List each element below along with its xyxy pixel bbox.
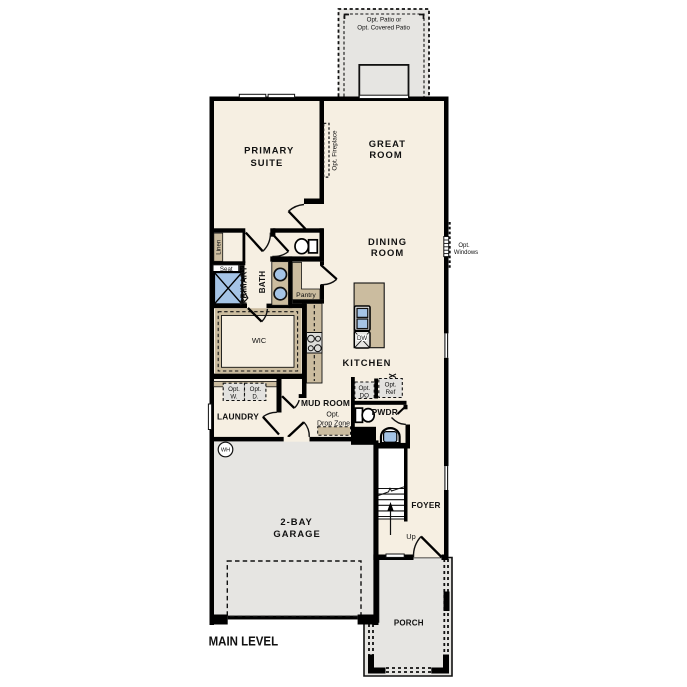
svg-text:Opt.: Opt. <box>458 243 470 249</box>
svg-text:Opt.: Opt. <box>358 385 370 392</box>
svg-text:DO: DO <box>360 392 369 399</box>
svg-text:Opt.: Opt. <box>228 386 240 393</box>
svg-text:GARAGE: GARAGE <box>273 528 320 539</box>
svg-text:KITCHEN: KITCHEN <box>342 357 391 368</box>
svg-text:Up: Up <box>406 532 415 541</box>
svg-text:Linen: Linen <box>215 239 222 255</box>
svg-text:DINING: DINING <box>368 236 407 247</box>
svg-text:MAIN LEVEL: MAIN LEVEL <box>209 633 279 648</box>
svg-text:D.: D. <box>252 394 258 401</box>
svg-text:Opt. Fireplace: Opt. Fireplace <box>332 130 339 171</box>
svg-text:Windows: Windows <box>454 250 478 256</box>
svg-text:2-BAY: 2-BAY <box>280 516 313 527</box>
svg-text:PRIMARY: PRIMARY <box>244 145 294 156</box>
svg-text:ROOM: ROOM <box>369 149 402 160</box>
svg-text:ROOM: ROOM <box>371 247 404 258</box>
svg-text:Ref: Ref <box>386 389 396 396</box>
svg-text:Drop Zone: Drop Zone <box>317 421 350 428</box>
svg-text:W.: W. <box>230 394 237 401</box>
svg-text:BATH: BATH <box>258 271 267 293</box>
svg-text:MUD ROOM: MUD ROOM <box>301 398 350 408</box>
svg-text:PRIMARY: PRIMARY <box>239 266 248 304</box>
svg-text:Opt.: Opt. <box>250 386 262 393</box>
svg-text:Opt.: Opt. <box>326 412 339 419</box>
svg-text:GREAT: GREAT <box>369 138 406 149</box>
svg-text:Opt. Covered Patio: Opt. Covered Patio <box>357 25 410 32</box>
svg-text:Opt. Patio or: Opt. Patio or <box>367 17 402 24</box>
svg-text:WIC: WIC <box>252 336 267 345</box>
svg-text:LAUNDRY: LAUNDRY <box>217 411 259 421</box>
svg-text:PWDR: PWDR <box>372 407 398 417</box>
svg-text:PORCH: PORCH <box>394 619 424 628</box>
svg-text:Pantry: Pantry <box>296 292 316 299</box>
svg-text:FOYER: FOYER <box>411 501 440 510</box>
svg-text:SUITE: SUITE <box>250 157 283 168</box>
svg-text:DW: DW <box>357 335 367 342</box>
svg-text:WH: WH <box>221 448 230 454</box>
svg-text:Opt.: Opt. <box>385 381 397 388</box>
